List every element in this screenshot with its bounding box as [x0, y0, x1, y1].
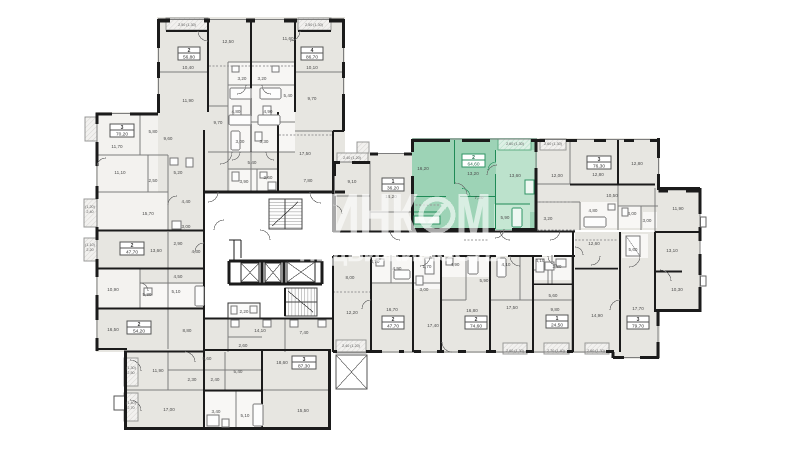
svg-text:2: 2: [392, 317, 395, 323]
svg-text:76,30: 76,30: [593, 164, 605, 170]
svg-text:54,20: 54,20: [133, 329, 145, 335]
svg-text:64,60: 64,60: [467, 162, 479, 168]
svg-text:4,50: 4,50: [174, 274, 183, 279]
svg-text:86,70: 86,70: [306, 55, 318, 61]
svg-text:3,20: 3,20: [544, 216, 553, 221]
svg-text:11,90: 11,90: [182, 98, 194, 103]
svg-text:5,80: 5,80: [149, 129, 158, 134]
svg-text:3,20: 3,20: [238, 76, 247, 81]
svg-text:3,00: 3,00: [420, 287, 429, 292]
svg-text:3,90: 3,90: [240, 179, 249, 184]
svg-text:4,40: 4,40: [182, 199, 191, 204]
svg-text:16,80: 16,80: [466, 308, 478, 313]
svg-text:74,60: 74,60: [470, 324, 482, 330]
svg-text:11,70: 11,70: [111, 144, 123, 149]
svg-text:4,30: 4,30: [192, 249, 201, 254]
svg-text:8,00: 8,00: [346, 275, 355, 280]
svg-text:НЕДВИЖИМОСТЬ: НЕДВИЖИМОСТЬ: [299, 243, 501, 266]
svg-text:24,50: 24,50: [551, 323, 563, 329]
svg-text:3: 3: [637, 317, 640, 323]
svg-text:5,90: 5,90: [480, 278, 489, 283]
svg-text:5,10: 5,10: [241, 413, 250, 418]
svg-text:17,50: 17,50: [299, 151, 311, 156]
svg-text:12,00: 12,00: [551, 173, 563, 178]
svg-text:17,00: 17,00: [163, 407, 175, 412]
svg-text:5,60: 5,60: [203, 356, 212, 361]
svg-text:9,80: 9,80: [551, 307, 560, 312]
svg-text:10,50: 10,50: [606, 193, 618, 198]
svg-text:4,10: 4,10: [536, 258, 545, 263]
svg-text:2,90: 2,90: [174, 241, 183, 246]
svg-text:7,80: 7,80: [304, 178, 313, 183]
svg-text:(1,30): (1,30): [126, 366, 136, 370]
svg-text:18,60: 18,60: [276, 360, 288, 365]
svg-text:12,80: 12,80: [631, 161, 643, 166]
svg-text:17,40: 17,40: [427, 323, 439, 328]
svg-text:3,00: 3,00: [643, 218, 652, 223]
svg-text:9,60: 9,60: [164, 136, 173, 141]
svg-text:(1,20): (1,20): [85, 205, 95, 209]
svg-text:14,90: 14,90: [591, 313, 603, 318]
svg-text:13,10: 13,10: [666, 248, 678, 253]
svg-text:13,60: 13,60: [150, 248, 162, 253]
svg-text:11,10: 11,10: [114, 170, 126, 175]
svg-text:10,90: 10,90: [107, 287, 119, 292]
svg-text:2: 2: [475, 317, 478, 323]
svg-text:16,50: 16,50: [107, 327, 119, 332]
svg-text:12,20: 12,20: [346, 310, 358, 315]
svg-text:М: М: [456, 182, 491, 249]
svg-text:87,30: 87,30: [298, 364, 310, 370]
svg-text:10,40: 10,40: [182, 65, 194, 70]
svg-text:11,60: 11,60: [282, 36, 294, 41]
svg-text:5,60: 5,60: [629, 247, 638, 252]
svg-text:70,20: 70,20: [116, 132, 128, 138]
svg-text:(1,10): (1,10): [85, 243, 95, 247]
svg-text:2,60 (1,30): 2,60 (1,30): [506, 349, 524, 353]
svg-text:2,60 (1,30): 2,60 (1,30): [544, 142, 562, 146]
svg-text:2: 2: [472, 155, 475, 161]
svg-text:47,70: 47,70: [126, 250, 138, 256]
svg-text:3: 3: [121, 125, 124, 131]
svg-text:2,20: 2,20: [86, 248, 93, 252]
svg-text:8,80: 8,80: [183, 328, 192, 333]
svg-text:5,90: 5,90: [501, 215, 510, 220]
svg-text:11,90: 11,90: [672, 206, 684, 211]
svg-text:4: 4: [311, 48, 314, 54]
svg-text:5,40: 5,40: [234, 369, 243, 374]
svg-text:2,40 (1,20): 2,40 (1,20): [342, 344, 360, 348]
svg-text:5,40: 5,40: [284, 93, 293, 98]
svg-text:4,80: 4,80: [589, 208, 598, 213]
svg-text:2,70 (1,40): 2,70 (1,40): [547, 349, 565, 353]
svg-text:2,50: 2,50: [149, 178, 158, 183]
svg-text:9,70: 9,70: [214, 120, 223, 125]
svg-text:4,90: 4,90: [393, 266, 402, 271]
svg-text:3,00: 3,00: [236, 139, 245, 144]
svg-text:13,60: 13,60: [509, 173, 521, 178]
svg-text:ИНК: ИНК: [328, 182, 418, 249]
svg-text:4,10: 4,10: [502, 262, 511, 267]
svg-text:9,70: 9,70: [308, 96, 317, 101]
svg-text:79,70: 79,70: [632, 324, 644, 330]
svg-text:2,40: 2,40: [86, 210, 93, 214]
svg-text:4,90: 4,90: [264, 109, 273, 114]
svg-text:5,30: 5,30: [143, 292, 152, 297]
svg-text:3,80: 3,80: [553, 264, 562, 269]
svg-text:4,00: 4,00: [628, 211, 637, 216]
svg-text:2,50: 2,50: [127, 371, 134, 375]
svg-text:2: 2: [131, 243, 134, 249]
svg-text:3,00: 3,00: [182, 224, 191, 229]
svg-text:(1,40): (1,40): [126, 401, 136, 405]
svg-text:10,30: 10,30: [671, 287, 683, 292]
svg-text:17,50: 17,50: [506, 305, 518, 310]
svg-text:2,60: 2,60: [264, 175, 273, 180]
svg-text:11,90: 11,90: [152, 368, 164, 373]
svg-text:17,70: 17,70: [632, 306, 644, 311]
svg-text:15,70: 15,70: [142, 211, 154, 216]
svg-text:3,20: 3,20: [258, 76, 267, 81]
svg-text:5,10: 5,10: [172, 289, 181, 294]
svg-text:12,50: 12,50: [222, 39, 234, 44]
svg-text:3: 3: [303, 357, 306, 363]
svg-text:2,30: 2,30: [188, 377, 197, 382]
svg-text:2,40: 2,40: [211, 377, 220, 382]
svg-text:5,20: 5,20: [174, 170, 183, 175]
svg-text:3: 3: [598, 157, 601, 163]
svg-text:13,20: 13,20: [467, 171, 479, 176]
svg-text:3,40: 3,40: [212, 409, 221, 414]
svg-text:1: 1: [556, 316, 559, 322]
svg-text:2,50 (1,30): 2,50 (1,30): [178, 23, 196, 27]
svg-text:14,10: 14,10: [254, 328, 266, 333]
svg-text:5,40: 5,40: [248, 160, 257, 165]
svg-text:4,80: 4,80: [232, 109, 241, 114]
svg-text:7,40: 7,40: [300, 330, 309, 335]
svg-text:47,70: 47,70: [387, 324, 399, 330]
svg-text:2,60 (1,30): 2,60 (1,30): [506, 142, 524, 146]
svg-text:15,50: 15,50: [297, 408, 309, 413]
svg-text:2,60 (1,30): 2,60 (1,30): [587, 349, 605, 353]
svg-text:2,50 (1,30): 2,50 (1,30): [305, 23, 323, 27]
svg-text:2,60: 2,60: [239, 343, 248, 348]
svg-text:3,30: 3,30: [260, 139, 269, 144]
svg-text:2,40 (1,20): 2,40 (1,20): [343, 156, 361, 160]
svg-text:16,20: 16,20: [417, 166, 429, 171]
svg-text:12,60: 12,60: [588, 241, 600, 246]
svg-text:10,10: 10,10: [306, 65, 318, 70]
svg-text:2: 2: [188, 48, 191, 54]
svg-text:12,80: 12,80: [592, 172, 604, 177]
svg-text:16,70: 16,70: [386, 307, 398, 312]
svg-text:2: 2: [138, 322, 141, 328]
svg-text:56,80: 56,80: [183, 55, 195, 61]
svg-text:2,20: 2,20: [240, 309, 249, 314]
svg-text:2,70: 2,70: [127, 406, 134, 410]
svg-text:5,60: 5,60: [549, 293, 558, 298]
